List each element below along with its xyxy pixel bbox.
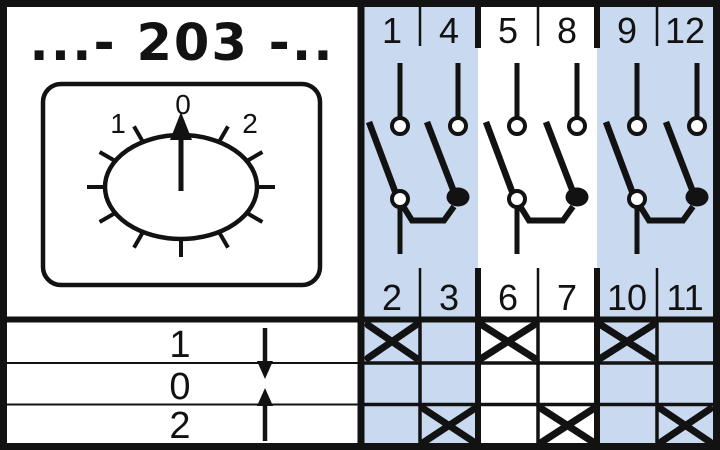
dial-label-0: 0 <box>175 89 191 120</box>
contact-blade <box>546 122 573 192</box>
terminal-number: 12 <box>665 10 705 51</box>
fixed-contact-open <box>629 118 645 134</box>
position-label-0: 0 <box>169 366 190 408</box>
dial-label-2: 2 <box>242 108 258 139</box>
moving-contact-closed <box>447 188 470 207</box>
terminal-number: 5 <box>498 10 518 51</box>
fixed-contact-open <box>450 118 466 134</box>
terminal-number: 1 <box>382 10 402 51</box>
switch-diagram: ...- 203 -.. 1 0 2 <box>0 0 720 450</box>
terminal-number: 8 <box>557 10 577 51</box>
contact-blade <box>486 122 513 194</box>
return-arrow-down <box>257 328 273 379</box>
fixed-contact-open <box>569 118 585 134</box>
position-rows: 1 0 2 <box>169 324 273 447</box>
contact-group-2 <box>486 63 589 254</box>
position-label-1: 1 <box>169 324 190 366</box>
terminal-number: 11 <box>666 277 703 318</box>
terminal-number: 7 <box>557 277 577 318</box>
terminal-number: 2 <box>382 277 402 318</box>
position-label-2: 2 <box>169 405 190 447</box>
common-bridge <box>520 206 573 221</box>
terminal-number: 6 <box>498 277 518 318</box>
fixed-contact-open <box>509 118 525 134</box>
terminal-number: 3 <box>439 277 459 318</box>
fixed-contact-open <box>689 118 705 134</box>
dial-pointer <box>170 112 192 191</box>
moving-contact-closed <box>686 188 709 207</box>
moving-contact-closed <box>566 188 589 207</box>
terminal-number: 10 <box>607 277 647 318</box>
diagram-canvas: ...- 203 -.. 1 0 2 <box>0 0 720 450</box>
terminal-number: 9 <box>617 10 637 51</box>
fixed-contact-open <box>392 118 408 134</box>
terminal-number: 4 <box>439 10 459 51</box>
model-title: ...- 203 -.. <box>29 14 334 73</box>
dial-label-1: 1 <box>110 108 126 139</box>
return-arrow-up <box>257 388 273 441</box>
